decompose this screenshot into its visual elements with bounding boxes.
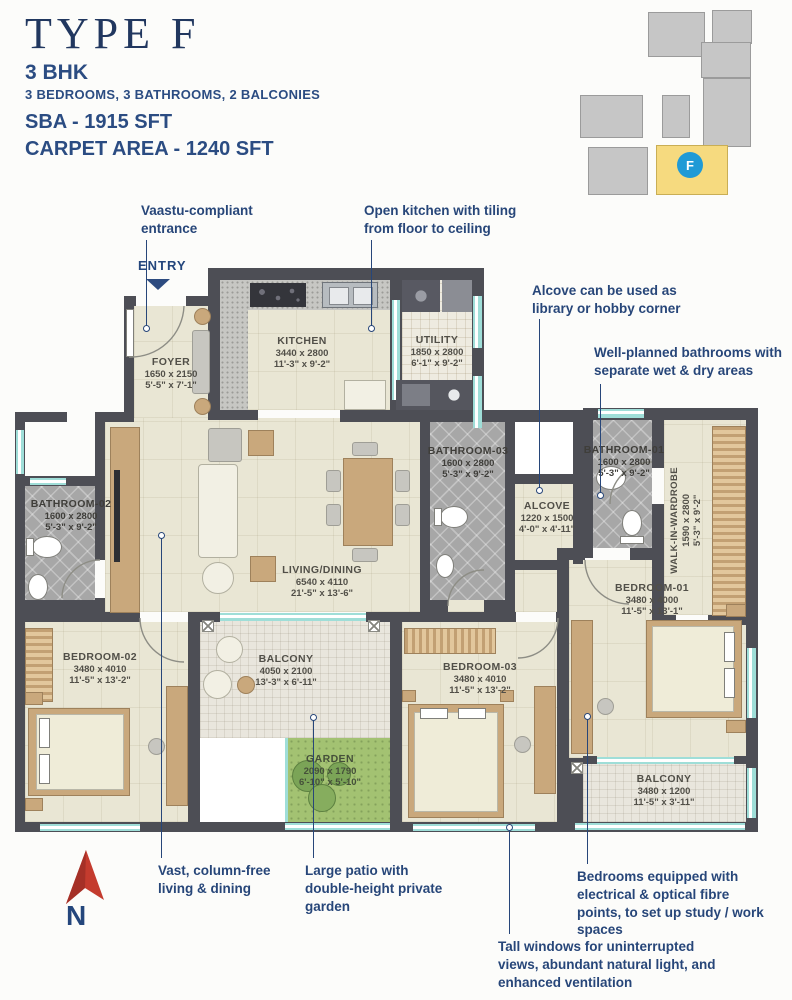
- window: [747, 768, 756, 818]
- nightstand: [25, 692, 43, 705]
- window: [747, 648, 756, 718]
- mattress: [652, 626, 734, 712]
- carpet-area-label: CARPET AREA - 1240 SFT: [25, 138, 274, 161]
- window: [413, 824, 535, 831]
- sliding-door-window: [220, 613, 366, 621]
- sink-bowl: [353, 287, 373, 305]
- dining-chair: [395, 504, 410, 526]
- key-plan-block: [703, 78, 751, 147]
- wall: [420, 600, 448, 612]
- leader-dot: [143, 325, 150, 332]
- desk-chair: [514, 736, 531, 753]
- room-label-balcony-main: BALCONY 4050 x 2100 13'-3" x 6'-11": [224, 653, 348, 689]
- stool: [194, 398, 211, 415]
- room-label-bathroom-03: BATHROOM-03 1600 x 2800 5'-3" x 9'-2": [421, 445, 515, 481]
- window: [598, 409, 644, 418]
- leader-dot: [597, 492, 604, 499]
- wall: [505, 560, 565, 570]
- wall: [95, 412, 105, 560]
- key-plan-block: [588, 147, 648, 195]
- dining-chair: [395, 470, 410, 492]
- wall: [15, 600, 105, 612]
- drain-marker: [571, 762, 583, 774]
- wall: [557, 548, 569, 832]
- key-plan-block: [662, 95, 690, 138]
- kitchen-sink: [322, 282, 378, 308]
- bhk-label: 3 BHK: [25, 61, 88, 85]
- wall: [188, 612, 200, 832]
- pouf-chair: [202, 562, 234, 594]
- dining-chair: [352, 548, 378, 562]
- leader-dot: [158, 532, 165, 539]
- annotation-alcove: Alcove can be used as library or hobby c…: [532, 282, 717, 318]
- dishwasher: [344, 380, 386, 410]
- sink: [436, 554, 454, 578]
- room-label-balcony-small: BALCONY 3480 x 1200 11'-5" x 3'-11": [602, 773, 726, 809]
- wall: [15, 412, 67, 422]
- room-label-kitchen: KITCHEN 3440 x 2800 11'-3" x 9'-2": [250, 335, 354, 371]
- leader-line: [371, 240, 372, 328]
- toilet: [622, 510, 642, 536]
- leader-line: [313, 719, 314, 858]
- pillow: [724, 632, 735, 662]
- dining-chair: [326, 504, 341, 526]
- toilet-tank: [26, 538, 34, 556]
- leader-dot: [584, 713, 591, 720]
- key-plan-block: [648, 12, 705, 57]
- wall: [390, 612, 402, 832]
- wall: [15, 612, 140, 622]
- mattress: [414, 712, 498, 812]
- key-plan-block: [580, 95, 643, 138]
- leader-line: [539, 319, 540, 489]
- room-label-wardrobe: WALK-IN-WARDROBE 1590 x 2800 5'-3" x 9'-…: [641, 453, 731, 587]
- leader-line: [600, 384, 601, 494]
- unit-badge: F: [677, 152, 703, 178]
- entry-arrow-icon: [146, 279, 170, 290]
- kitchen-counter: [220, 310, 248, 410]
- window: [575, 823, 745, 830]
- armchair: [208, 428, 242, 462]
- wall: [573, 418, 583, 564]
- room-label-bedroom-01: BEDROOM-01 3480 x 4000 11'-5" x 13'-1": [590, 582, 714, 618]
- washing-machine: [402, 280, 440, 312]
- north-label: N: [66, 900, 86, 932]
- window: [285, 823, 390, 830]
- leader-dot: [310, 714, 317, 721]
- toilet: [32, 536, 62, 558]
- annotation-kitchen: Open kitchen with tiling from floor to c…: [364, 202, 529, 238]
- wall: [124, 296, 136, 306]
- leader-dot: [506, 824, 513, 831]
- page-title: TYPE F: [25, 8, 200, 59]
- leader-dot: [368, 325, 375, 332]
- desk-chair: [597, 698, 614, 715]
- window: [16, 430, 24, 474]
- washing-machine: [402, 384, 430, 406]
- nightstand: [726, 604, 746, 617]
- annotation-patio: Large patio with double-height private g…: [305, 862, 445, 915]
- drain-marker: [202, 620, 214, 632]
- wall: [734, 756, 746, 764]
- wall: [505, 474, 583, 484]
- entry-door-leaf: [126, 309, 134, 357]
- pillow: [39, 718, 50, 748]
- annotation-windows: Tall windows for uninterrupted views, ab…: [498, 938, 733, 991]
- leader-line: [509, 829, 510, 934]
- room-label-foyer: FOYER 1650 x 2150 5'-5" x 7'-1": [128, 356, 214, 392]
- leader-dot: [536, 487, 543, 494]
- sink-bowl: [329, 287, 349, 305]
- room-label-bathroom-02: BATHROOM-02 1600 x 2800 5'-3" x 9'-2": [25, 498, 117, 534]
- wall: [402, 612, 516, 622]
- nightstand: [402, 690, 416, 702]
- annotation-bedrooms: Bedrooms equipped with electrical & opti…: [577, 868, 767, 939]
- desk-chair: [148, 738, 165, 755]
- hob: [250, 283, 306, 307]
- pillow: [724, 668, 735, 698]
- annotation-living: Vast, column-free living & dining: [158, 862, 308, 898]
- wall: [208, 410, 258, 420]
- study-desk: [534, 686, 556, 794]
- stool: [194, 308, 211, 325]
- sba-label: SBA - 1915 SFT: [25, 111, 172, 134]
- wall: [484, 600, 515, 612]
- leader-line: [146, 240, 147, 328]
- window: [597, 757, 734, 764]
- sofa: [198, 464, 238, 558]
- plan-notch: [198, 738, 285, 826]
- room-label-alcove: ALCOVE 1220 x 1500 4'-0" x 4'-11": [506, 500, 588, 536]
- dining-table: [343, 458, 393, 546]
- toilet: [440, 506, 468, 528]
- window: [40, 824, 140, 831]
- annotation-bathrooms: Well-planned bathrooms with separate wet…: [594, 344, 789, 380]
- annotation-vaastu: Vaastu-compliant entrance: [141, 202, 266, 238]
- wall: [15, 412, 25, 832]
- pillow: [458, 708, 486, 719]
- leader-line: [587, 718, 588, 864]
- room-label-bedroom-03: BEDROOM-03 3480 x 4010 11'-5" x 13'-2": [418, 661, 542, 697]
- dining-chair: [326, 470, 341, 492]
- nightstand: [25, 798, 43, 811]
- void-above-alcove: [515, 418, 578, 474]
- room-label-bedroom-02: BEDROOM-02 3480 x 4010 11'-5" x 13'-2": [38, 651, 162, 687]
- window: [30, 478, 66, 485]
- wall: [556, 612, 569, 622]
- wardrobe: [404, 628, 496, 654]
- window: [473, 376, 482, 428]
- study-desk: [571, 620, 593, 754]
- utility-appliance: [442, 280, 472, 312]
- room-label-utility: UTILITY 1850 x 2800 6'-1" x 9'-2": [396, 334, 478, 370]
- key-plan-block: [712, 10, 752, 44]
- wall: [340, 410, 588, 422]
- dining-chair: [352, 442, 378, 456]
- side-table: [248, 430, 274, 456]
- pillow: [39, 754, 50, 784]
- configuration-label: 3 BEDROOMS, 3 BATHROOMS, 2 BALCONIES: [25, 87, 320, 102]
- room-label-living: LIVING/DINING 6540 x 4110 21'-5" x 13'-6…: [250, 564, 394, 600]
- drain-marker: [368, 620, 380, 632]
- key-plan-block: [701, 42, 751, 78]
- sink: [28, 574, 48, 600]
- wall: [569, 548, 585, 560]
- leader-line: [161, 537, 162, 858]
- wall: [583, 756, 597, 764]
- nightstand: [726, 720, 746, 733]
- study-desk: [166, 686, 188, 806]
- toilet-tank: [434, 508, 442, 526]
- room-label-garden: GARDEN 2090 x 1790 6'-10" x 5'-10": [283, 753, 377, 789]
- wall: [208, 268, 484, 280]
- pillow: [420, 708, 448, 719]
